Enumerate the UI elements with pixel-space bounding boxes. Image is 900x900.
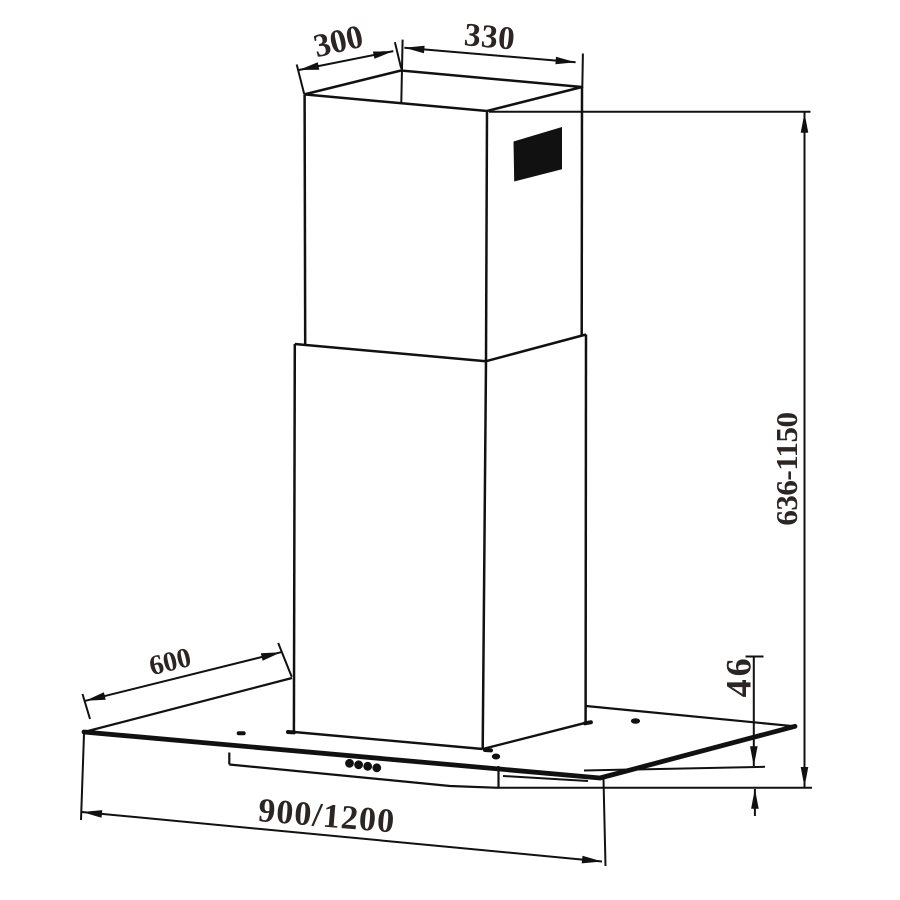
svg-text:330: 330 xyxy=(463,17,517,57)
svg-text:636-1150: 636-1150 xyxy=(769,412,804,525)
svg-text:46: 46 xyxy=(718,655,758,697)
svg-text:900/1200: 900/1200 xyxy=(257,792,397,840)
